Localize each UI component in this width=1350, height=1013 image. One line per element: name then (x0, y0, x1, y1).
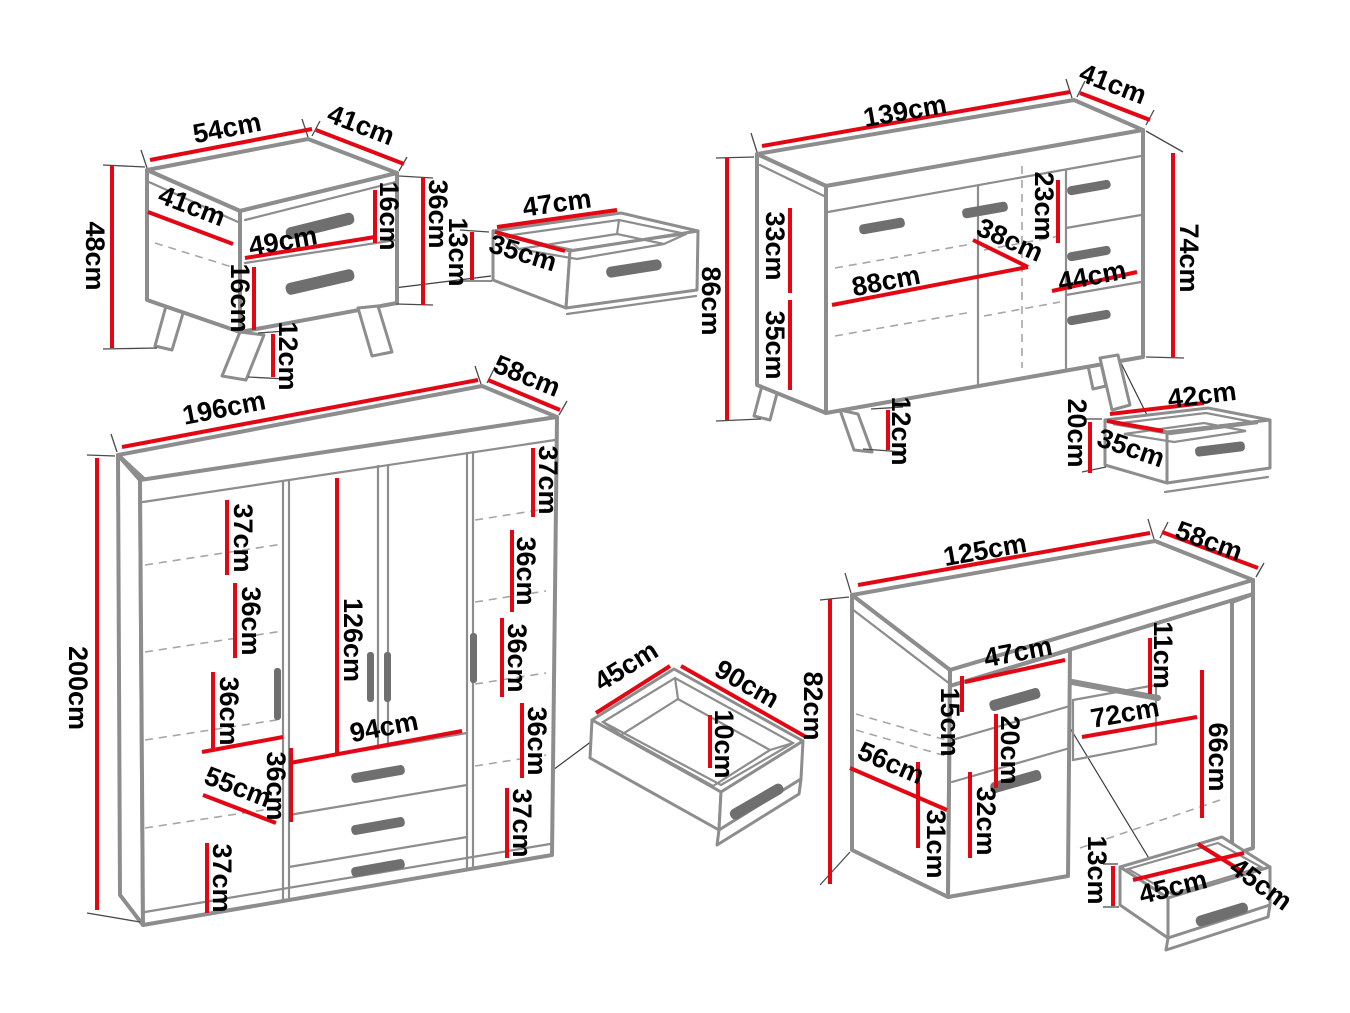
desk-door-height-label: 32cm (971, 786, 1001, 855)
wardrobe-left-shelf-1-label: 37cm (228, 503, 258, 572)
sideboard-drawer-height-label: 20cm (1062, 398, 1092, 467)
diagram-canvas: 54cm 41cm 48cm 41cm 49cm 16cm 16cm 36cm … (0, 0, 1350, 1013)
sideboard-height-label: 86cm (696, 266, 726, 335)
desk-niche-width-label: 72cm (1088, 692, 1161, 734)
nightstand-drawer-drawing: 47cm 35cm 13cm (443, 183, 698, 314)
door-handle (384, 652, 391, 702)
nightstand-leg (222, 332, 264, 380)
desk-niche-height-label: 66cm (1203, 722, 1233, 791)
extension-line (1082, 467, 1106, 472)
sideboard-upper-shelf-label: 33cm (760, 211, 790, 280)
wardrobe-left-shelf-2-label: 36cm (236, 586, 266, 655)
wardrobe-door-height-label: 126cm (338, 598, 368, 682)
wardrobe-center-shelf-label: 36cm (261, 751, 291, 820)
wardrobe-drawing: 196cm 58cm 200cm 37cm 36cm 36cm 55cm 37c… (63, 349, 567, 925)
nightstand-leg (358, 306, 392, 356)
wardrobe-left-shelf-4-label: 37cm (207, 843, 237, 912)
wardrobe-left-shelf-3-label: 36cm (214, 676, 244, 745)
wardrobe-right-shelf-5-label: 37cm (507, 788, 537, 857)
desk-drawing: 125cm 58cm 82cm 47cm 15cm 20cm 11cm 72cm… (798, 515, 1264, 897)
desk-height-label: 82cm (798, 671, 828, 740)
nightstand-top-depth-label: 41cm (323, 99, 398, 152)
desk-drawer-height-label: 13cm (1082, 835, 1112, 904)
wardrobe-right-shelf-2-label: 36cm (511, 536, 541, 605)
nightstand-height-label: 48cm (80, 221, 110, 290)
wardrobe-right-shelf-1-label: 37cm (533, 445, 563, 514)
desk-drawer-drawing: 13cm 45cm 45cm (1082, 835, 1298, 950)
sideboard-drawer-drawing: 42cm 35cm 20cm (1062, 376, 1270, 492)
desk-drawer-height-label: 15cm (935, 687, 965, 756)
wardrobe-drawer-height-label: 10cm (709, 709, 739, 778)
sideboard-lower-shelf-label: 35cm (760, 310, 790, 379)
nightstand-leg-height-label: 12cm (273, 321, 303, 390)
nightstand-drawing: 54cm 41cm 48cm 41cm 49cm 16cm 16cm 36cm … (80, 99, 453, 391)
nightstand-top-width-label: 54cm (190, 107, 264, 150)
door-handle (274, 668, 281, 720)
desk-shelf-height-label: 20cm (995, 715, 1025, 784)
wardrobe-drawer-drawing: 45cm 90cm 10cm (589, 635, 806, 845)
sideboard-drawer-width-label: 42cm (1166, 376, 1238, 414)
sideboard-leg (1100, 355, 1130, 410)
desk-bottom-height-label: 31cm (921, 809, 951, 878)
sideboard-leg (840, 410, 872, 452)
door-handle (470, 633, 477, 683)
wardrobe-right-shelf-4-label: 36cm (522, 706, 552, 775)
wardrobe-height-label: 200cm (63, 646, 93, 730)
sideboard-top-depth-label: 41cm (1075, 58, 1150, 111)
nightstand-upper-drawer-height-label: 16cm (374, 181, 404, 250)
right-panel (1232, 594, 1253, 855)
nightstand-lower-drawer-height-label: 16cm (225, 263, 255, 332)
desk-tray-height-label: 11cm (1148, 621, 1178, 689)
sideboard-drawing: 139cm 41cm 86cm 33cm 35cm 88cm 38cm 23cm… (696, 58, 1204, 466)
nightstand-drawer-height-label: 13cm (443, 217, 473, 286)
sideboard-leg-height-label: 12cm (886, 396, 916, 465)
wardrobe-right-shelf-3-label: 36cm (502, 623, 532, 692)
sideboard-drawer-height-label: 23cm (1029, 171, 1059, 240)
sideboard-side-height-label: 74cm (1174, 223, 1204, 292)
furniture-dimensions-diagram: 54cm 41cm 48cm 41cm 49cm 16cm 16cm 36cm … (0, 0, 1350, 1013)
